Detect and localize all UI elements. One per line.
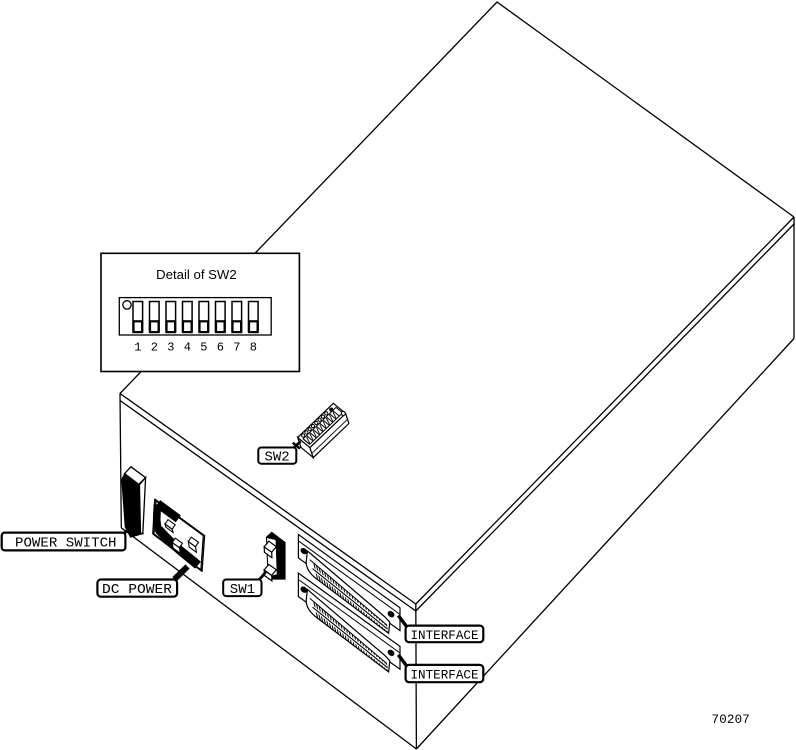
svg-text:POWER SWITCH: POWER SWITCH bbox=[15, 536, 117, 552]
svg-text:3: 3 bbox=[167, 341, 174, 355]
svg-text:SW2: SW2 bbox=[265, 450, 290, 466]
svg-text:6: 6 bbox=[217, 341, 224, 355]
svg-text:INTERFACE: INTERFACE bbox=[411, 669, 479, 683]
svg-text:7: 7 bbox=[233, 341, 240, 355]
svg-text:70207: 70207 bbox=[712, 713, 751, 727]
svg-text:5: 5 bbox=[200, 341, 207, 355]
svg-text:SW1: SW1 bbox=[230, 582, 255, 598]
svg-text:Detail of SW2: Detail of SW2 bbox=[156, 267, 237, 282]
svg-text:4: 4 bbox=[184, 341, 191, 355]
svg-text:DC POWER: DC POWER bbox=[102, 582, 173, 598]
svg-text:8: 8 bbox=[250, 341, 257, 355]
svg-text:2: 2 bbox=[151, 341, 158, 355]
svg-text:1: 1 bbox=[134, 341, 141, 355]
svg-text:INTERFACE: INTERFACE bbox=[411, 629, 479, 643]
